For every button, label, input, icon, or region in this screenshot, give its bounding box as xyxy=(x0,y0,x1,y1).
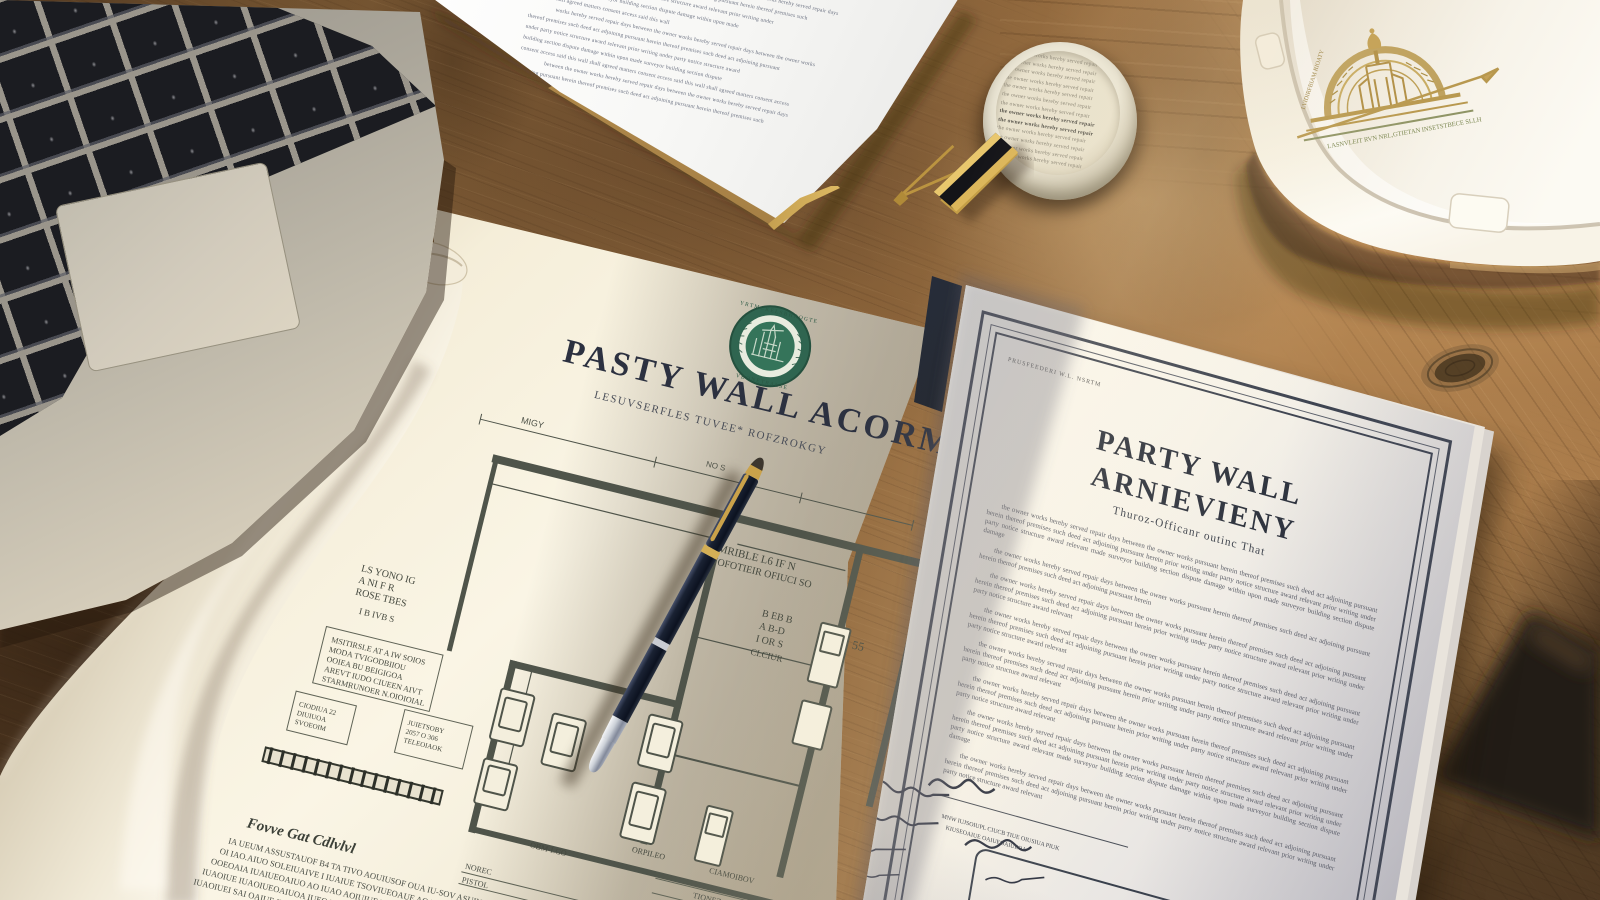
svg-text:55: 55 xyxy=(851,638,866,654)
